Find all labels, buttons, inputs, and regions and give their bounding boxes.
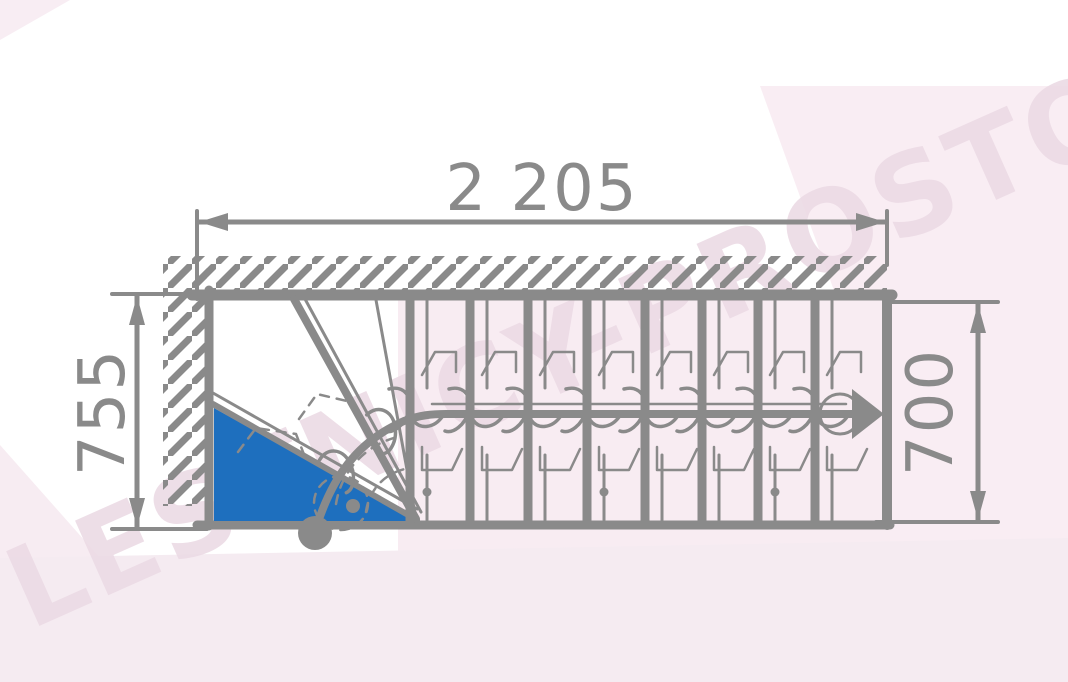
- dim-arrow-up: [129, 296, 145, 325]
- hatch-top-band: [163, 256, 887, 290]
- tread-dot: [423, 488, 432, 497]
- dimension-label-total-length: 2 205: [445, 152, 638, 226]
- staircase-plan-drawing: LESTNICY-PROSTO.RU: [0, 0, 1068, 682]
- staircase-drawing-page: LESTNICY-PROSTO.RU: [0, 0, 1068, 682]
- pink-corner-top-left: [0, 0, 70, 40]
- dimension-label-left-width: 755: [66, 348, 140, 476]
- watermark-background: LESTNICY-PROSTO.RU: [0, 0, 1068, 682]
- dim-arrow-left: [199, 213, 228, 231]
- tread-dot: [771, 488, 780, 497]
- dimension-label-right-width: 700: [894, 348, 968, 476]
- tread-dot: [600, 488, 609, 497]
- walk-line-small-dot: [346, 499, 360, 513]
